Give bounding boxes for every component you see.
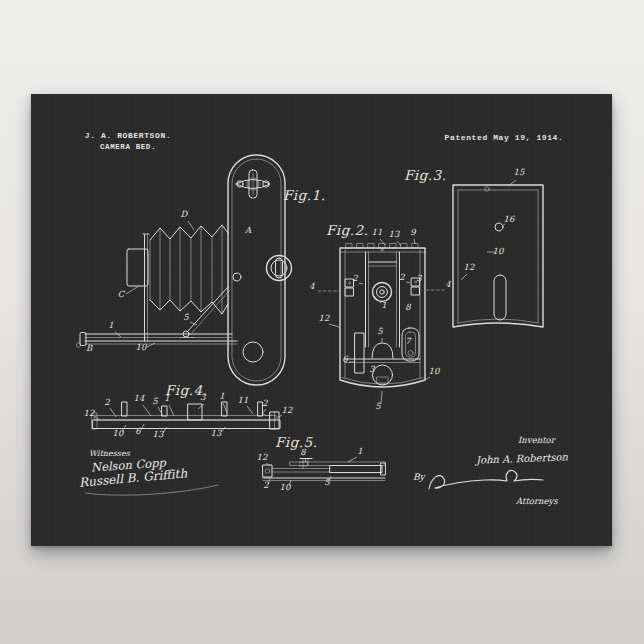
fig2-spring-catch <box>345 343 420 385</box>
fig1-label: Fig.1. <box>283 187 326 203</box>
fig3-slot <box>494 275 506 320</box>
ref-leader-fig4-13 <box>221 427 225 432</box>
ref-numeral-fig3-12: 12 <box>464 262 475 272</box>
by-label: By <box>413 472 425 482</box>
ref-leader-fig4-13 <box>163 427 167 433</box>
ref-numeral-fig3-15: 15 <box>514 167 525 177</box>
ref-numeral-fig4-12: 12 <box>282 405 293 415</box>
ref-numeral-fig4-12: 12 <box>84 408 95 418</box>
ref-numeral-fig2-3: 3 <box>416 273 422 283</box>
ref-numeral-fig1-A: A <box>244 225 252 235</box>
ref-numeral-fig4-13: 13 <box>153 429 164 439</box>
ref-numeral-fig2-10: 10 <box>429 366 440 376</box>
ref-numeral-fig4-2: 2 <box>262 398 268 408</box>
ref-leader-fig2-10 <box>423 377 430 381</box>
ref-leader-fig1-10 <box>147 343 155 347</box>
fig1-camera-body <box>228 155 292 385</box>
ref-numeral-fig5-2: 2 <box>263 480 269 490</box>
fig1-bed <box>76 333 237 348</box>
ref-numeral-fig5-1: 1 <box>357 446 362 456</box>
fig3-hole-16 <box>495 223 503 231</box>
ref-numeral-fig2-8: 8 <box>405 302 411 312</box>
ref-numeral-fig5-12: 12 <box>257 452 268 462</box>
fig2-bed-plan-view <box>318 244 444 388</box>
ref-numeral-fig2-7: 7 <box>405 336 412 346</box>
ref-numeral-fig2-2: 2 <box>399 272 405 282</box>
ref-leader-fig2-13 <box>397 241 401 246</box>
fig5-label: Fig.5. <box>275 434 318 450</box>
ref-numeral-fig2-9: 9 <box>410 227 417 237</box>
fig2-knob <box>373 283 392 302</box>
ref-leader-fig5-1 <box>348 457 357 462</box>
ref-numeral-fig1-5: 5 <box>183 312 189 322</box>
ref-leader-fig1-C <box>126 286 139 294</box>
ref-leader-fig3-12 <box>461 274 467 280</box>
ref-numeral-fig2-1: 1 <box>381 300 386 310</box>
patent-title: CAMERA BED. <box>68 143 188 151</box>
ref-leader-fig4-1 <box>223 403 227 413</box>
ref-numeral-fig4-11: 11 <box>238 395 249 405</box>
patent-date: Patented May 19, 1914. <box>443 133 565 142</box>
witnesses-label: Witnesses <box>89 449 130 458</box>
ref-numeral-fig4-6: 6 <box>135 426 142 436</box>
fig1-small-stud <box>233 273 241 281</box>
inventor-label: Inventor <box>518 435 555 445</box>
ref-numeral-fig4-1: 1 <box>219 391 224 401</box>
ref-numeral-fig4-13: 13 <box>211 428 222 438</box>
fig3-pin-hole <box>485 187 490 192</box>
ref-numeral-fig2-2: 2 <box>352 273 358 283</box>
ref-leader-fig2-5 <box>381 391 382 404</box>
fig2-label: Fig.2. <box>326 222 369 238</box>
fig3-label: Fig.3. <box>404 167 447 183</box>
ref-numeral-fig2-4: 4 <box>445 279 451 289</box>
fig2-focusing-scale <box>355 333 364 373</box>
ref-numeral-fig2-3: 3 <box>369 364 375 374</box>
ref-numeral-fig4-2: 2 <box>104 397 110 407</box>
ref-numeral-fig4-14: 14 <box>134 393 145 403</box>
fig4-bed-section <box>92 402 280 429</box>
ref-numeral-fig2-12: 12 <box>319 313 330 323</box>
ref-numeral-fig1-B: B <box>86 343 93 353</box>
attorney-signature <box>429 471 543 489</box>
patent-inventor-name: J. A. ROBERTSON. <box>68 131 188 140</box>
ref-leader-fig4-14 <box>143 405 151 416</box>
attorneys-label: Attorneys <box>516 496 558 506</box>
ref-numeral-fig5-5: 5 <box>324 477 330 487</box>
fig1-bellows <box>150 225 228 314</box>
ref-numeral-fig1-D: D <box>181 209 189 219</box>
ref-leader-fig4-11 <box>247 406 253 414</box>
ref-leader-fig4-3 <box>198 404 204 409</box>
ref-numeral-fig5-10: 10 <box>280 482 291 492</box>
fig1-camera-side-view <box>76 155 291 385</box>
ref-numeral-fig4-10: 10 <box>113 428 124 438</box>
ref-leader-fig2-2 <box>406 282 410 283</box>
ref-numeral-fig3-16: 16 <box>504 214 516 224</box>
fig1-winding-key <box>236 170 270 198</box>
ref-leader-fig4-1 <box>169 405 174 416</box>
ref-numeral-fig4-5: 5 <box>152 396 158 406</box>
ref-numeral-fig2-11: 11 <box>372 227 383 237</box>
ref-leader-fig2-11 <box>380 239 385 245</box>
ref-numeral-fig1-10: 10 <box>136 342 147 352</box>
ref-numeral-fig2-5: 5 <box>377 326 383 336</box>
fig1-latch-ring <box>267 256 292 281</box>
ref-leader-fig1-D <box>188 221 194 230</box>
fig3-back-panel <box>453 185 543 327</box>
ref-leader-fig2-12 <box>329 324 339 327</box>
ref-numeral-fig1-1: 1 <box>108 320 113 330</box>
fig4-label: Fig.4. <box>165 382 208 398</box>
patent-art-poster: DACB110511139442231218671053515161012122… <box>31 94 612 546</box>
ref-numeral-fig1-C: C <box>118 289 126 299</box>
ref-leader-fig4-6 <box>141 424 144 430</box>
ref-numeral-fig2-5: 5 <box>375 401 381 411</box>
ref-numeral-fig3-10: 10 <box>493 246 504 256</box>
ref-numeral-fig2-4: 4 <box>309 281 315 291</box>
product-photo-backdrop: { "poster": { "header": { "name_line": "… <box>0 0 644 644</box>
fig1-tripod-socket <box>243 342 263 362</box>
ref-numeral-fig2-13: 13 <box>389 229 400 239</box>
ref-leader-fig2-2 <box>359 283 363 284</box>
